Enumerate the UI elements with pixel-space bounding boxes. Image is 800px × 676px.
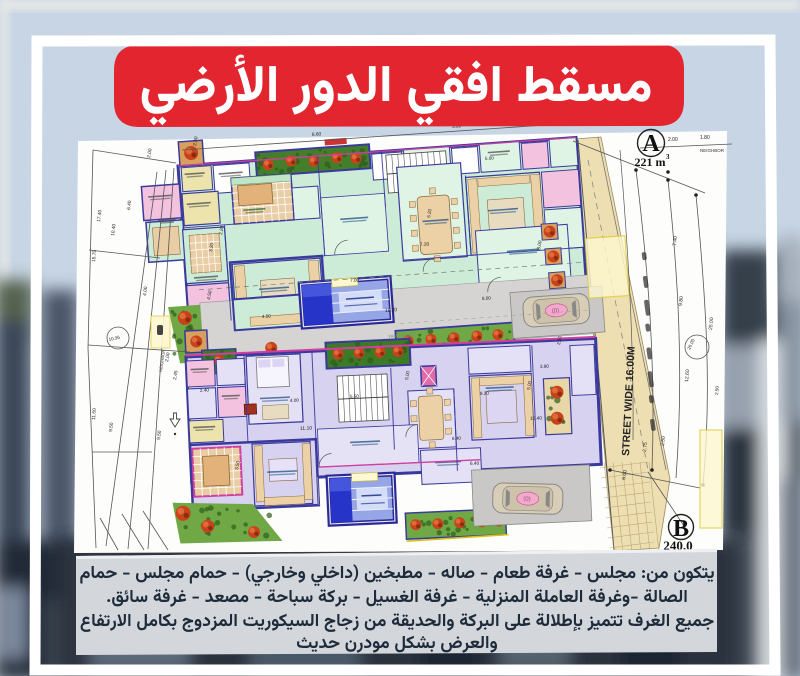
svg-text:1.80: 1.80 xyxy=(700,135,710,141)
svg-text:15.75: 15.75 xyxy=(91,249,98,262)
svg-text:9.50: 9.50 xyxy=(156,430,163,440)
svg-text:8.60: 8.60 xyxy=(312,131,322,138)
svg-text:7.40: 7.40 xyxy=(672,236,679,246)
svg-text:2.75: 2.75 xyxy=(642,442,649,452)
svg-text:3.80: 3.80 xyxy=(540,364,550,369)
svg-text:3: 3 xyxy=(666,153,670,161)
svg-text:11.20: 11.20 xyxy=(385,307,398,314)
svg-text:6.40: 6.40 xyxy=(470,461,480,467)
svg-text:NEIGHBOR: NEIGHBOR xyxy=(700,148,725,153)
svg-text:11.10: 11.10 xyxy=(300,426,313,432)
svg-text:2.40: 2.40 xyxy=(200,388,210,393)
svg-text:(0): (0) xyxy=(552,308,560,315)
svg-text:8.00: 8.00 xyxy=(482,296,492,301)
svg-text:11.60: 11.60 xyxy=(91,408,98,420)
svg-text:6.40: 6.40 xyxy=(452,436,462,441)
svg-text:(0): (0) xyxy=(523,497,530,503)
svg-text:5.00: 5.00 xyxy=(485,155,495,161)
svg-text:9.80: 9.80 xyxy=(678,296,685,306)
svg-text:2.00: 2.00 xyxy=(668,137,678,143)
svg-text:6.40: 6.40 xyxy=(126,200,133,210)
svg-text:2.50: 2.50 xyxy=(714,385,720,395)
svg-text:4.00: 4.00 xyxy=(142,286,149,296)
svg-text:8.20: 8.20 xyxy=(480,391,490,396)
svg-text:4.00: 4.00 xyxy=(290,398,300,403)
svg-text:A: A xyxy=(642,131,660,157)
svg-text:12.60: 12.60 xyxy=(684,369,691,382)
svg-text:2.50: 2.50 xyxy=(660,436,667,446)
svg-text:7.00: 7.00 xyxy=(350,277,360,283)
svg-text:4.50: 4.50 xyxy=(262,314,272,319)
svg-text:7.20: 7.20 xyxy=(420,241,430,247)
svg-text:25.00: 25.00 xyxy=(708,317,715,330)
svg-text:5.50: 5.50 xyxy=(350,394,360,399)
svg-text:10.40: 10.40 xyxy=(530,416,543,422)
svg-text:9.50: 9.50 xyxy=(108,422,115,432)
svg-text:221 m: 221 m xyxy=(635,155,666,169)
